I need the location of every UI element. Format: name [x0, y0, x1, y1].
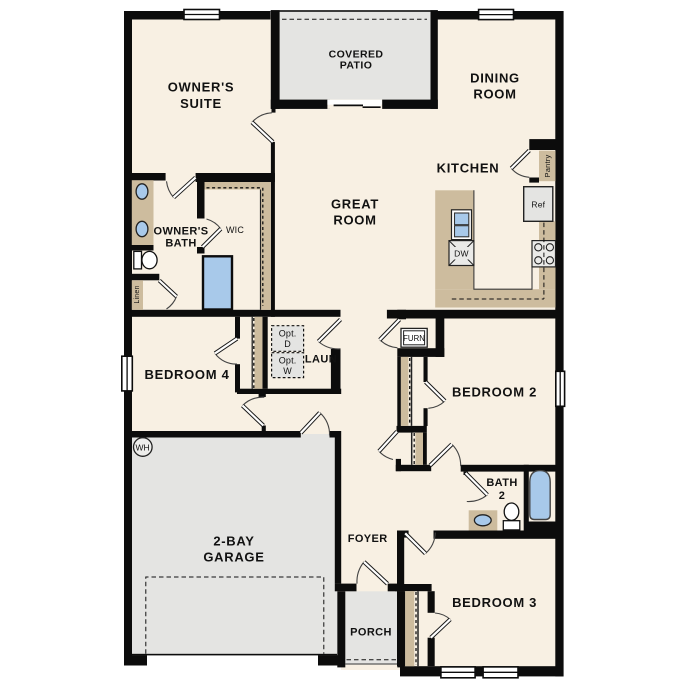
svg-text:OWNER'S: OWNER'S — [168, 80, 235, 95]
svg-text:BATH: BATH — [165, 238, 196, 250]
svg-text:GARAGE: GARAGE — [203, 550, 264, 565]
svg-text:KITCHEN: KITCHEN — [437, 161, 500, 176]
svg-text:OWNER'S: OWNER'S — [154, 226, 209, 238]
svg-text:BEDROOM 4: BEDROOM 4 — [144, 367, 229, 382]
svg-text:Pantry: Pantry — [543, 155, 552, 178]
svg-text:ROOM: ROOM — [333, 213, 376, 228]
svg-text:2-BAY: 2-BAY — [213, 534, 254, 549]
svg-text:FOYER: FOYER — [348, 533, 388, 545]
svg-text:PORCH: PORCH — [350, 627, 392, 639]
svg-text:SUITE: SUITE — [180, 96, 222, 111]
svg-text:WH: WH — [136, 442, 150, 452]
svg-text:BATH: BATH — [486, 477, 517, 489]
svg-text:DINING: DINING — [470, 71, 520, 86]
svg-text:D: D — [284, 339, 291, 349]
svg-text:LAUN: LAUN — [305, 354, 337, 366]
svg-text:BEDROOM 2: BEDROOM 2 — [452, 385, 537, 400]
svg-text:2: 2 — [499, 490, 506, 502]
svg-text:GREAT: GREAT — [331, 197, 379, 212]
svg-text:Opt.: Opt. — [279, 329, 297, 339]
svg-text:FURN: FURN — [403, 334, 425, 343]
svg-text:Linen: Linen — [134, 285, 141, 303]
svg-text:PATIO: PATIO — [340, 60, 373, 72]
svg-text:W: W — [283, 366, 292, 376]
svg-text:ROOM: ROOM — [473, 87, 516, 102]
svg-text:DW: DW — [454, 248, 469, 258]
svg-text:BEDROOM 3: BEDROOM 3 — [452, 595, 537, 610]
svg-text:Opt.: Opt. — [279, 356, 297, 366]
svg-text:WIC: WIC — [226, 225, 244, 235]
svg-text:Ref: Ref — [531, 200, 545, 210]
